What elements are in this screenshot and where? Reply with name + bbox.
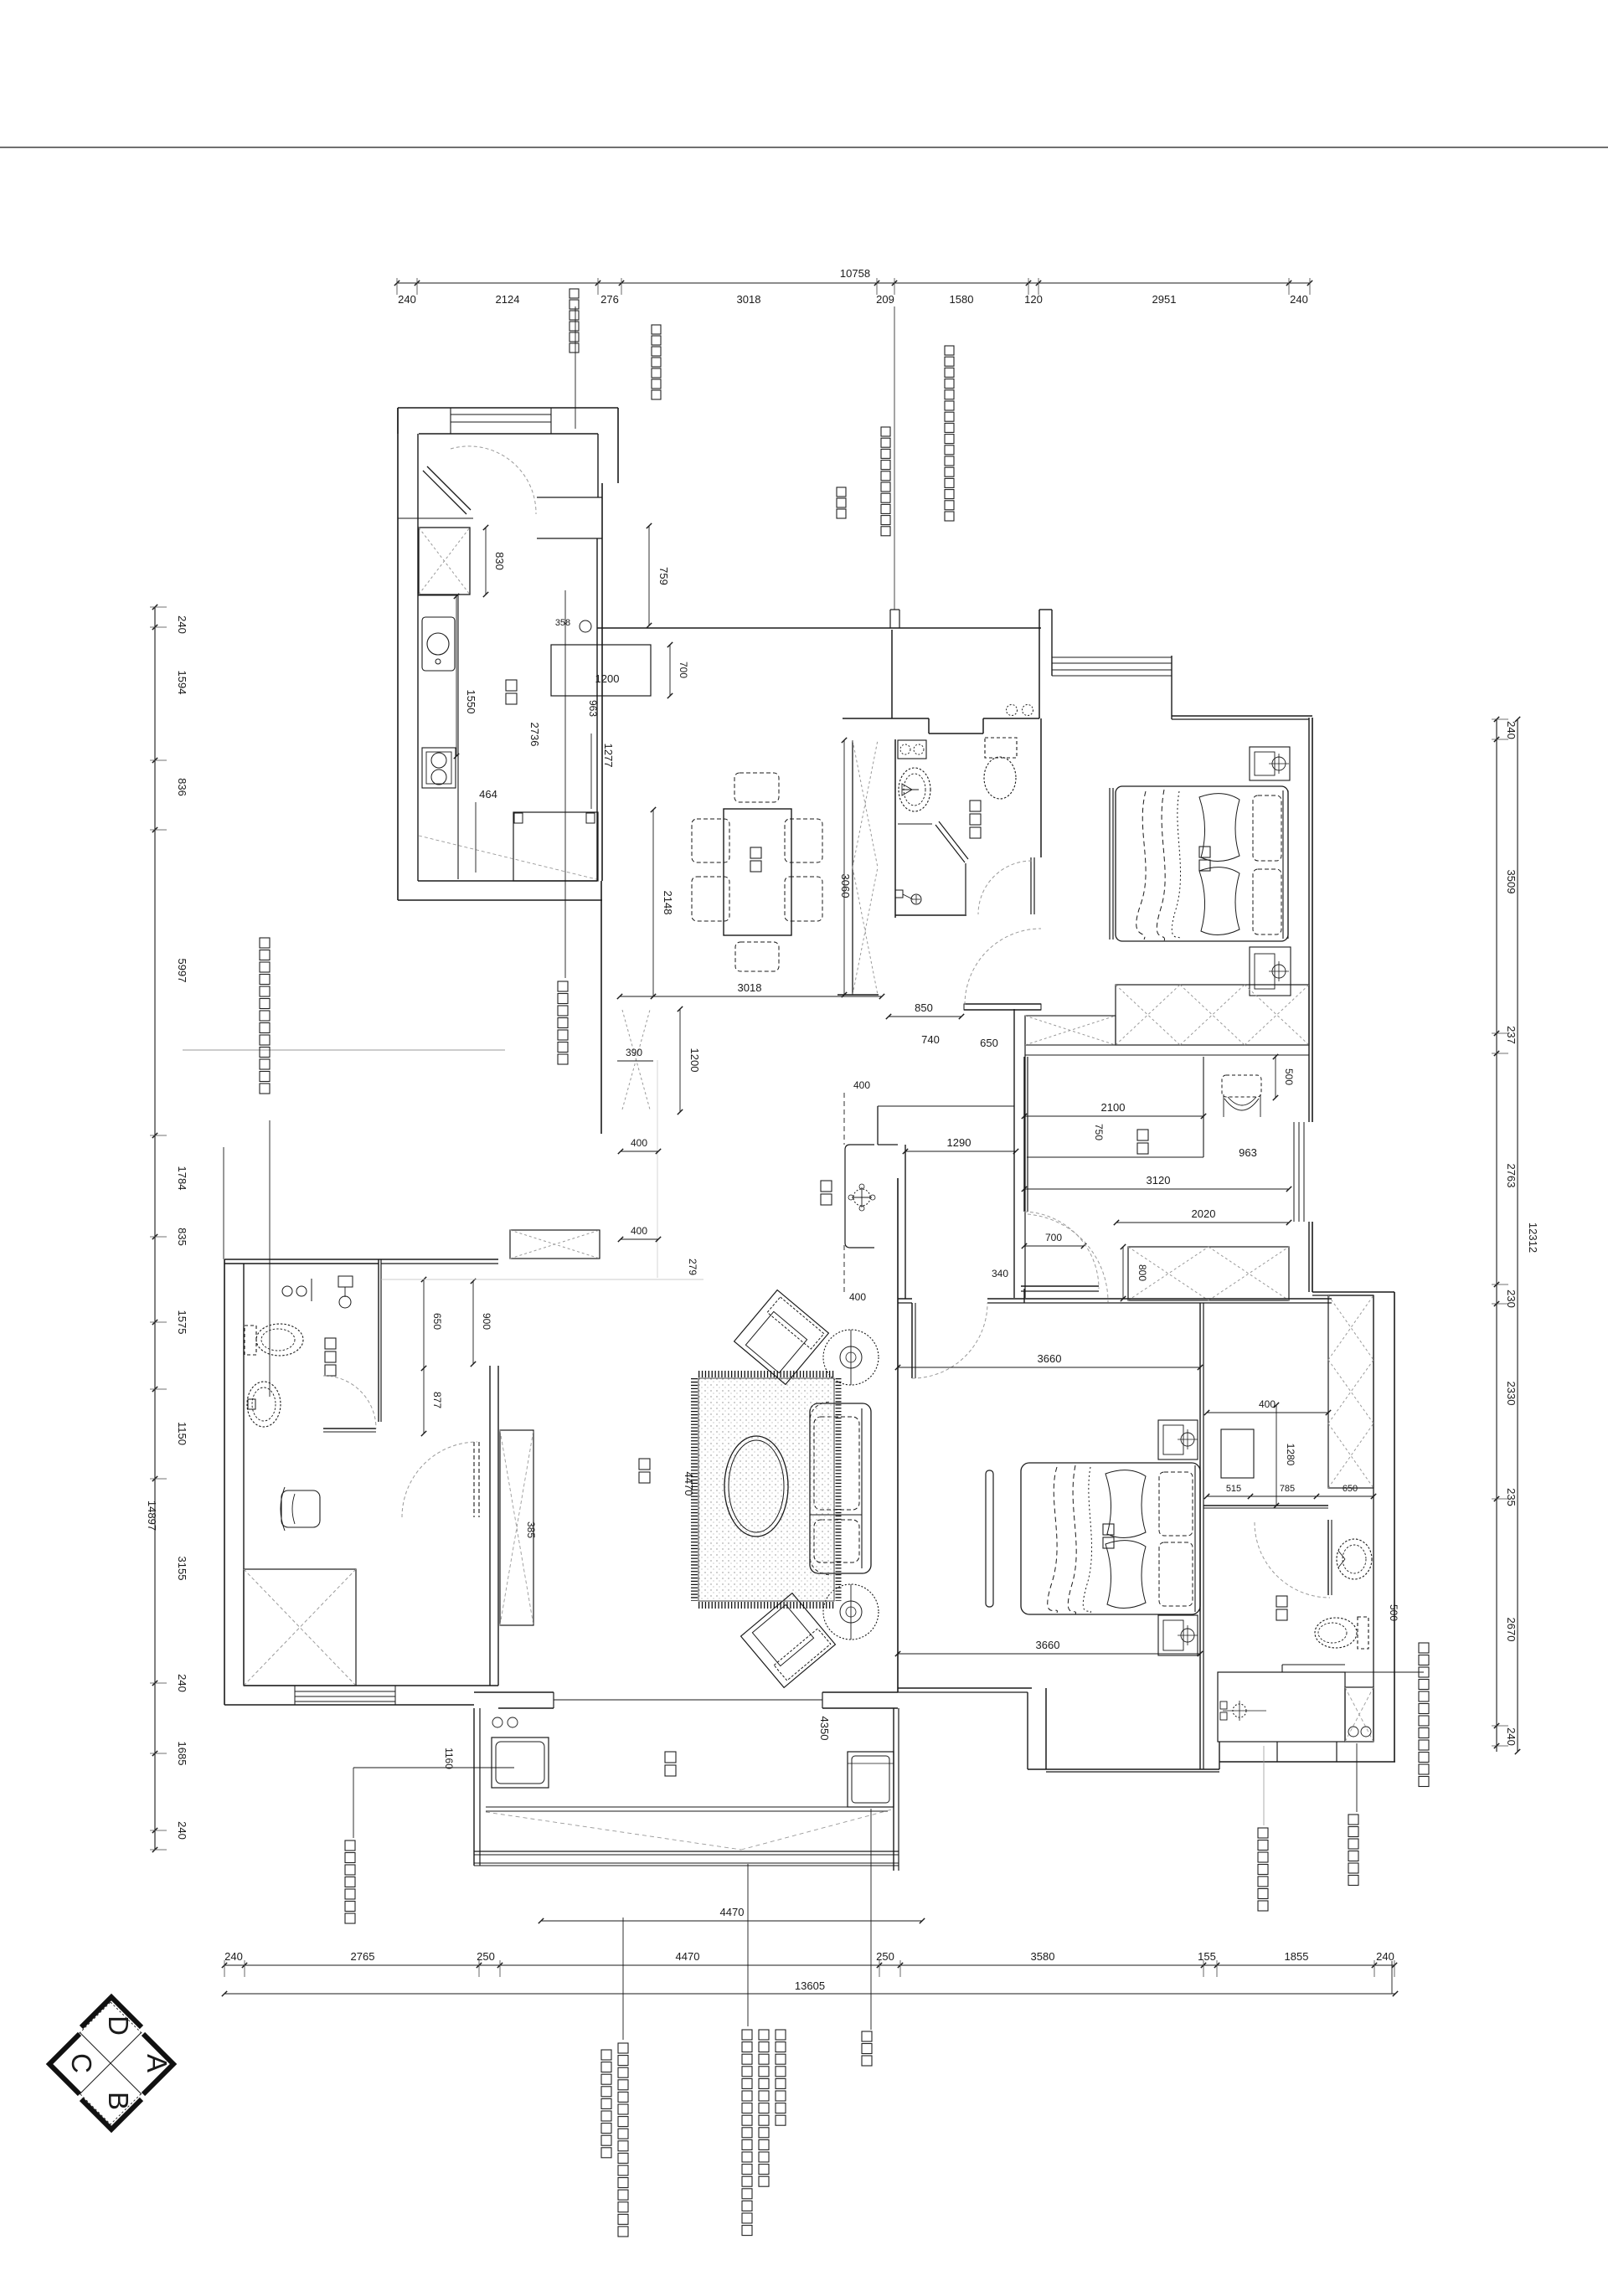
svg-text:240: 240: [176, 615, 188, 634]
svg-text:500: 500: [1283, 1068, 1295, 1085]
svg-text:1855: 1855: [1285, 1950, 1309, 1963]
svg-text:2736: 2736: [528, 723, 541, 747]
svg-text:750: 750: [1093, 1124, 1105, 1140]
svg-text:3155: 3155: [176, 1557, 188, 1581]
svg-text:240: 240: [1290, 293, 1308, 306]
svg-text:A: A: [142, 2054, 173, 2072]
svg-text:240: 240: [1376, 1950, 1394, 1963]
svg-text:240: 240: [176, 1674, 188, 1692]
svg-text:240: 240: [176, 1821, 188, 1840]
svg-text:464: 464: [479, 788, 497, 801]
svg-text:13605: 13605: [795, 1979, 825, 1992]
svg-text:240: 240: [1505, 721, 1518, 739]
svg-text:1550: 1550: [465, 690, 477, 714]
svg-text:155: 155: [1198, 1950, 1216, 1963]
svg-text:3060: 3060: [839, 874, 852, 898]
svg-text:650: 650: [431, 1313, 443, 1330]
svg-text:240: 240: [398, 293, 416, 306]
svg-text:400: 400: [631, 1137, 647, 1149]
svg-text:250: 250: [477, 1950, 495, 1963]
svg-text:1200: 1200: [688, 1048, 701, 1073]
svg-text:5997: 5997: [176, 959, 188, 983]
svg-text:4470: 4470: [720, 1906, 745, 1918]
svg-text:2124: 2124: [496, 293, 520, 306]
svg-text:D: D: [103, 2015, 134, 2036]
svg-text:400: 400: [849, 1291, 866, 1303]
svg-text:209: 209: [876, 293, 894, 306]
svg-text:650: 650: [980, 1037, 998, 1049]
svg-text:385: 385: [525, 1521, 537, 1538]
svg-text:2951: 2951: [1152, 293, 1177, 306]
svg-text:400: 400: [853, 1079, 870, 1091]
svg-text:2765: 2765: [351, 1950, 375, 1963]
svg-text:1575: 1575: [176, 1310, 188, 1335]
svg-text:3660: 3660: [1038, 1352, 1062, 1365]
svg-text:3509: 3509: [1505, 870, 1518, 894]
svg-text:2100: 2100: [1101, 1101, 1126, 1114]
svg-text:14897: 14897: [146, 1501, 158, 1531]
svg-text:240: 240: [224, 1950, 243, 1963]
svg-text:3018: 3018: [737, 293, 761, 306]
svg-text:500: 500: [1388, 1604, 1399, 1621]
svg-text:2330: 2330: [1505, 1382, 1518, 1406]
svg-text:4350: 4350: [818, 1717, 831, 1741]
svg-text:2020: 2020: [1192, 1207, 1216, 1220]
svg-text:390: 390: [626, 1047, 642, 1058]
svg-text:515: 515: [1226, 1484, 1241, 1494]
svg-text:340: 340: [992, 1268, 1008, 1279]
svg-text:237: 237: [1505, 1026, 1518, 1044]
svg-text:2763: 2763: [1505, 1164, 1518, 1188]
svg-text:963: 963: [587, 700, 599, 717]
svg-text:B: B: [103, 2092, 134, 2110]
svg-text:3018: 3018: [738, 981, 762, 994]
svg-text:963: 963: [1239, 1146, 1257, 1159]
svg-text:1580: 1580: [950, 293, 974, 306]
svg-text:235: 235: [1505, 1488, 1518, 1506]
svg-text:2670: 2670: [1505, 1618, 1518, 1642]
svg-text:10758: 10758: [840, 267, 870, 280]
svg-text:400: 400: [631, 1225, 647, 1237]
svg-text:230: 230: [1505, 1290, 1518, 1308]
svg-text:759: 759: [657, 567, 670, 585]
svg-text:1200: 1200: [595, 672, 620, 685]
svg-text:3120: 3120: [1147, 1174, 1171, 1187]
svg-text:400: 400: [1259, 1398, 1276, 1410]
svg-text:3580: 3580: [1031, 1950, 1055, 1963]
svg-text:1290: 1290: [947, 1136, 971, 1149]
svg-text:700: 700: [678, 662, 689, 678]
svg-text:785: 785: [1280, 1484, 1295, 1494]
svg-text:2148: 2148: [662, 891, 674, 915]
svg-text:279: 279: [687, 1259, 698, 1275]
svg-text:740: 740: [921, 1033, 940, 1046]
svg-text:1277: 1277: [602, 744, 615, 768]
svg-text:830: 830: [493, 552, 506, 570]
svg-text:650: 650: [1343, 1484, 1358, 1494]
svg-text:250: 250: [876, 1950, 894, 1963]
svg-text:1150: 1150: [176, 1422, 188, 1445]
svg-text:3660: 3660: [1036, 1639, 1060, 1651]
svg-text:240: 240: [1505, 1727, 1518, 1746]
svg-text:1280: 1280: [1285, 1444, 1296, 1466]
svg-text:850: 850: [915, 1001, 933, 1014]
svg-text:276: 276: [600, 293, 619, 306]
svg-text:836: 836: [176, 778, 188, 796]
svg-text:1784: 1784: [176, 1166, 188, 1191]
svg-text:358: 358: [555, 618, 570, 628]
svg-text:C: C: [66, 2053, 97, 2073]
svg-text:877: 877: [431, 1392, 443, 1408]
svg-text:120: 120: [1024, 293, 1043, 306]
svg-text:800: 800: [1136, 1264, 1148, 1281]
svg-text:1685: 1685: [176, 1742, 188, 1766]
svg-text:835: 835: [176, 1228, 188, 1246]
svg-text:1594: 1594: [176, 671, 188, 695]
svg-text:700: 700: [1045, 1232, 1062, 1243]
svg-text:4470: 4470: [683, 1472, 695, 1496]
svg-text:4470: 4470: [676, 1950, 700, 1963]
svg-text:12312: 12312: [1527, 1223, 1539, 1253]
svg-text:1160: 1160: [443, 1748, 455, 1769]
svg-text:900: 900: [481, 1313, 492, 1330]
